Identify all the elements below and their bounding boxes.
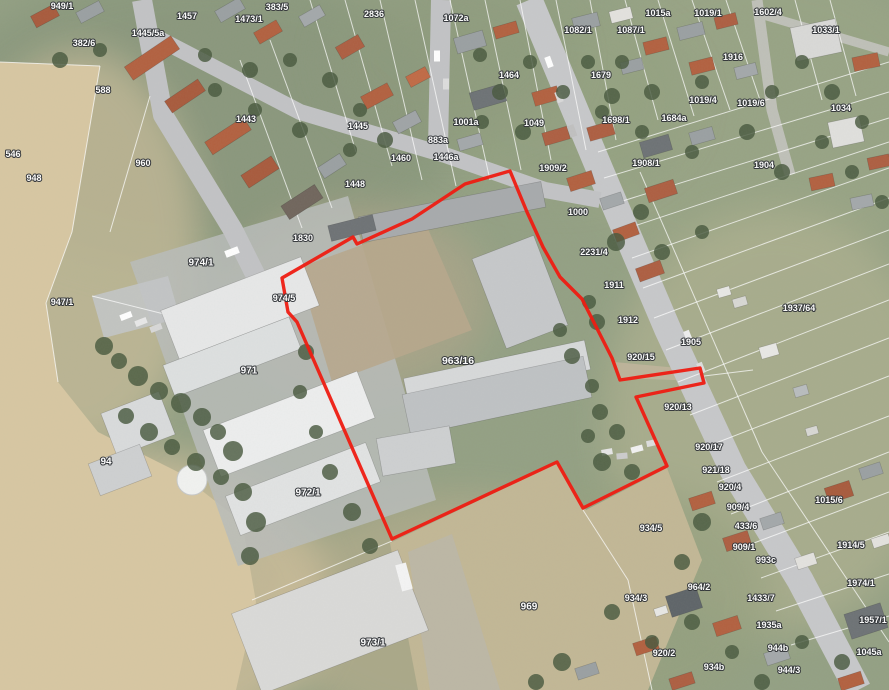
parcel-label: 972/1	[295, 488, 320, 499]
parcel-label: 1072a	[443, 13, 469, 23]
parcel-label: 1914/5	[837, 540, 865, 550]
parcel-label: 1082/1	[564, 25, 592, 35]
parcel-label: 1443	[236, 114, 256, 124]
parcel-label: 909/4	[727, 502, 750, 512]
parcel-label: 993c	[756, 555, 776, 565]
parcel-label: 944b	[768, 643, 789, 653]
parcel-label: 1602/4	[754, 7, 782, 17]
parcel-label: 1087/1	[617, 25, 645, 35]
parcel-label: 1045a	[856, 647, 882, 657]
parcel-label: 1033/1	[812, 25, 840, 35]
parcel-label: 1464	[499, 70, 519, 80]
parcel-label: 1457	[177, 11, 197, 21]
parcel-label: 1684a	[661, 113, 687, 123]
parcel-label: 934/3	[625, 593, 648, 603]
parcel-label: 2231/4	[580, 247, 608, 257]
parcel-label: 1937/64	[783, 303, 816, 313]
parcel-label: 974/5	[273, 293, 296, 303]
parcel-label: 1019/6	[737, 98, 765, 108]
parcel-label: 1830	[293, 233, 313, 243]
parcel-label: 1034	[831, 103, 851, 113]
parcel-label: 1446a	[433, 152, 459, 162]
cadastral-orthophoto-map: 949/1383/5283614571473/1382/61445/5a5881…	[0, 0, 889, 690]
parcel-label: 973/1	[360, 638, 385, 649]
parcel-label: 1912	[618, 315, 638, 325]
parcel-label: 588	[95, 85, 110, 95]
parcel-label: 94	[100, 457, 112, 468]
parcel-label: 382/6	[73, 38, 96, 48]
parcel-label: 1433/7	[747, 593, 775, 603]
parcel-label: 949/1	[51, 1, 74, 11]
parcel-label: 1460	[391, 153, 411, 163]
parcel-label: 1015/6	[815, 495, 843, 505]
parcel-label: 920/4	[719, 482, 742, 492]
parcel-label: 1911	[604, 280, 624, 290]
parcel-label: 1019/1	[694, 8, 722, 18]
parcel-label: 1909/2	[539, 163, 567, 173]
parcel-label: 920/17	[695, 442, 723, 452]
parcel-label: 1974/1	[847, 578, 875, 588]
parcel-label: 1904	[754, 160, 774, 170]
parcel-label: 971	[241, 366, 258, 377]
parcel-label: 1000	[568, 207, 588, 217]
parcel-label: 921/18	[702, 465, 730, 475]
parcel-label: 1698/1	[602, 115, 630, 125]
parcel-label: 909/1	[733, 542, 756, 552]
parcel-label: 883a	[428, 135, 449, 145]
parcel-label: 2836	[364, 9, 384, 19]
parcel-label: 1445/5a	[132, 28, 166, 38]
parcel-label: 948	[26, 173, 41, 183]
parcel-label: 1679	[591, 70, 611, 80]
parcel-label: 1935a	[756, 620, 782, 630]
parcel-label: 969	[521, 602, 538, 613]
parcel-label: 1957/1	[859, 615, 887, 625]
parcel-label: 1015a	[645, 8, 671, 18]
parcel-label: 1019/4	[689, 95, 717, 105]
parcel-label: 546	[5, 149, 20, 159]
parcel-label: 1905	[681, 337, 701, 347]
parcel-label: 934/5	[640, 523, 663, 533]
parcel-label: 1473/1	[235, 14, 263, 24]
parcel-label: 383/5	[266, 2, 289, 12]
parcel-label: 920/15	[627, 352, 655, 362]
parcel-label: 920/2	[653, 648, 676, 658]
parcel-label: 1445	[348, 121, 368, 131]
parcel-label: 947/1	[51, 297, 74, 307]
parcel-label: 920/13	[664, 402, 692, 412]
parcel-label: 433/6	[735, 521, 758, 531]
parcel-label: 964/2	[688, 582, 711, 592]
parcel-label: 1001a	[453, 117, 479, 127]
parcel-label: 944/3	[778, 665, 801, 675]
parcel-label: 1448	[345, 179, 365, 189]
parcel-label: 1908/1	[632, 158, 660, 168]
parcel-label: 934b	[704, 662, 725, 672]
parcel-label: 974/1	[188, 258, 213, 269]
aerial-map-viewport[interactable]: 949/1383/5283614571473/1382/61445/5a5881…	[0, 0, 889, 690]
parcel-label: 1049	[524, 118, 544, 128]
parcel-label: 1916	[723, 52, 743, 62]
parcel-label: 963/16	[442, 355, 474, 367]
parcel-label: 960	[135, 158, 150, 168]
